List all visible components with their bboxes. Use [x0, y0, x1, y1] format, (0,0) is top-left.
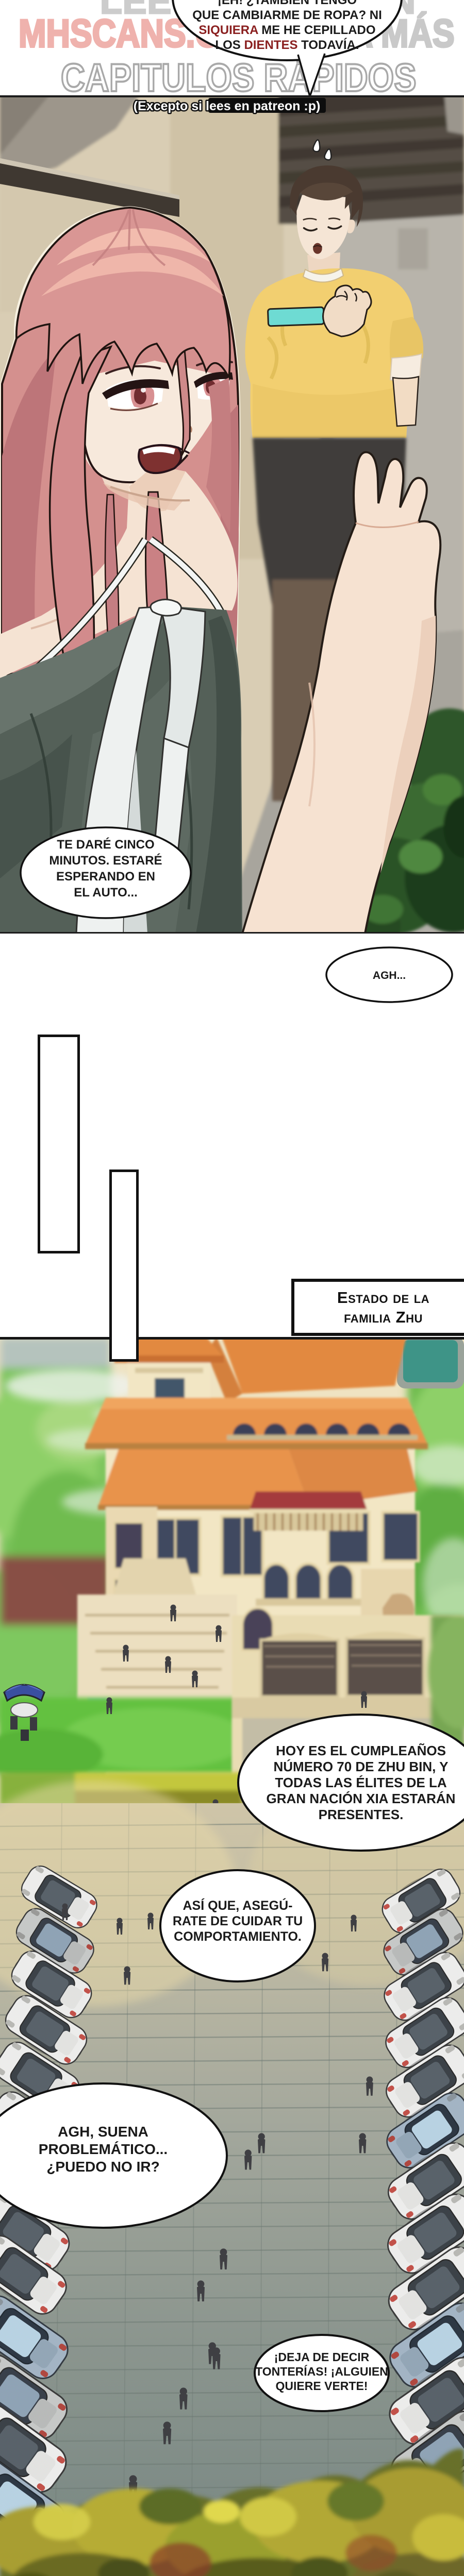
svg-text:QUIERE VERTE!: QUIERE VERTE!: [276, 2379, 368, 2393]
svg-text:AGH...: AGH...: [373, 970, 406, 981]
svg-text:(Excepto si lees en patreon :p: (Excepto si lees en patreon :p): [134, 99, 321, 113]
svg-text:TONTERÍAS! ¡ALGUIEN: TONTERÍAS! ¡ALGUIEN: [255, 2364, 388, 2378]
svg-text:TODAS LAS ÉLITES DE LA: TODAS LAS ÉLITES DE LA: [275, 1775, 446, 1790]
svg-text:QUE CAMBIARME DE ROPA? NI: QUE CAMBIARME DE ROPA? NI: [192, 8, 382, 22]
svg-text:TE DARÉ CINCO: TE DARÉ CINCO: [57, 837, 154, 852]
svg-text:LOS DIENTES TODAVÍA.: LOS DIENTES TODAVÍA.: [215, 38, 359, 52]
svg-text:AGH, SUENA: AGH, SUENA: [58, 2124, 148, 2140]
svg-text:COMPORTAMIENTO.: COMPORTAMIENTO.: [174, 1929, 302, 1944]
svg-text:GRAN NACIÓN XIA ESTARÁN: GRAN NACIÓN XIA ESTARÁN: [267, 1791, 456, 1806]
svg-text:¡EH! ¿TAMBIÉN TENGO: ¡EH! ¿TAMBIÉN TENGO: [218, 0, 357, 7]
svg-text:ESPERANDO EN: ESPERANDO EN: [56, 870, 155, 884]
svg-text:¿PUEDO NO IR?: ¿PUEDO NO IR?: [46, 2159, 159, 2175]
svg-text:PROBLEMÁTICO...: PROBLEMÁTICO...: [39, 2141, 168, 2157]
svg-text:PRESENTES.: PRESENTES.: [319, 1807, 404, 1822]
svg-text:RATE DE CUIDAR TU: RATE DE CUIDAR TU: [173, 1914, 303, 1928]
svg-text:EL AUTO...: EL AUTO...: [74, 886, 138, 900]
svg-text:¡DEJA DE DECIR: ¡DEJA DE DECIR: [274, 2350, 370, 2364]
svg-text:SIQUIERA ME HE CEPILLADO: SIQUIERA ME HE CEPILLADO: [198, 23, 375, 37]
svg-text:NÚMERO 70 DE ZHU BIN, Y: NÚMERO 70 DE ZHU BIN, Y: [273, 1759, 448, 1774]
svg-text:ASÍ QUE, ASEGÚ-: ASÍ QUE, ASEGÚ-: [183, 1897, 293, 1913]
svg-text:MINUTOS. ESTARÉ: MINUTOS. ESTARÉ: [49, 853, 162, 868]
svg-text:HOY ES EL CUMPLEAÑOS: HOY ES EL CUMPLEAÑOS: [276, 1743, 446, 1758]
